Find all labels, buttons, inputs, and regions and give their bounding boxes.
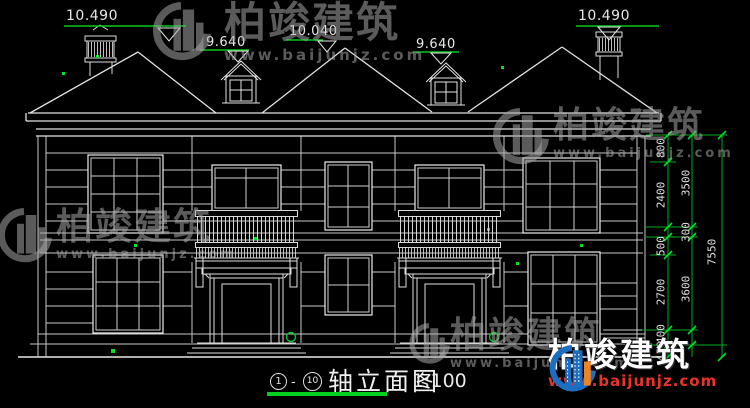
balcony-right-ribs bbox=[399, 247, 499, 258]
chimney-left-louver bbox=[88, 42, 113, 57]
watermark-brand: 柏竣建筑 bbox=[56, 208, 237, 245]
dim-7550: 7550 bbox=[706, 239, 719, 266]
dormer-right bbox=[426, 63, 466, 105]
baijun-logo-icon bbox=[487, 108, 553, 166]
dormer-left bbox=[221, 61, 261, 103]
cad-elevation-drawing: 10.490 9.640 10.040 9.640 10.490 800 240… bbox=[0, 0, 750, 408]
title-underline bbox=[267, 392, 387, 396]
axis-dash: - bbox=[291, 375, 296, 390]
watermark-url: www.baijunjz.com bbox=[224, 46, 425, 64]
balcony-right-balusters bbox=[400, 216, 498, 242]
watermark-right: 柏竣建筑 www.baijunjz.com bbox=[487, 108, 734, 166]
dim-3500: 3500 bbox=[680, 170, 693, 197]
watermark-brand: 柏竣建筑 bbox=[224, 2, 425, 44]
watermark-url: www.baijunjz.com bbox=[553, 146, 734, 161]
drawing-scale: 1:100 bbox=[412, 370, 467, 392]
dim-3600: 3600 bbox=[680, 276, 693, 303]
dim-300: 300 bbox=[680, 222, 693, 242]
baijun-logo-icon bbox=[408, 318, 450, 370]
baijun-logo-icon bbox=[138, 2, 224, 62]
footer-brand: 柏竣建筑 www.baijunjz.com bbox=[548, 338, 717, 390]
baijun-logo-color-icon bbox=[548, 338, 596, 400]
elevation-label-left: 10.490 bbox=[66, 8, 118, 24]
watermark-url: www.baijunjz.com bbox=[56, 247, 237, 262]
chimney-right-louver bbox=[599, 38, 619, 51]
watermark-left: 柏竣建筑 www.baijunjz.com bbox=[0, 208, 237, 264]
watermark-brand: 柏竣建筑 bbox=[553, 108, 734, 144]
dim-500: 500 bbox=[655, 236, 668, 256]
entrance-left bbox=[187, 258, 306, 353]
axis-bubble-start: 1 bbox=[270, 373, 287, 390]
dim-2700: 2700 bbox=[655, 279, 668, 306]
axis-bubble-end: 10 bbox=[303, 372, 322, 391]
elevation-label-right: 10.490 bbox=[578, 8, 630, 24]
dim-2400: 2400 bbox=[655, 182, 668, 209]
baijun-logo-icon bbox=[0, 208, 56, 264]
watermark-top: 柏竣建筑 www.baijunjz.com bbox=[138, 2, 425, 64]
